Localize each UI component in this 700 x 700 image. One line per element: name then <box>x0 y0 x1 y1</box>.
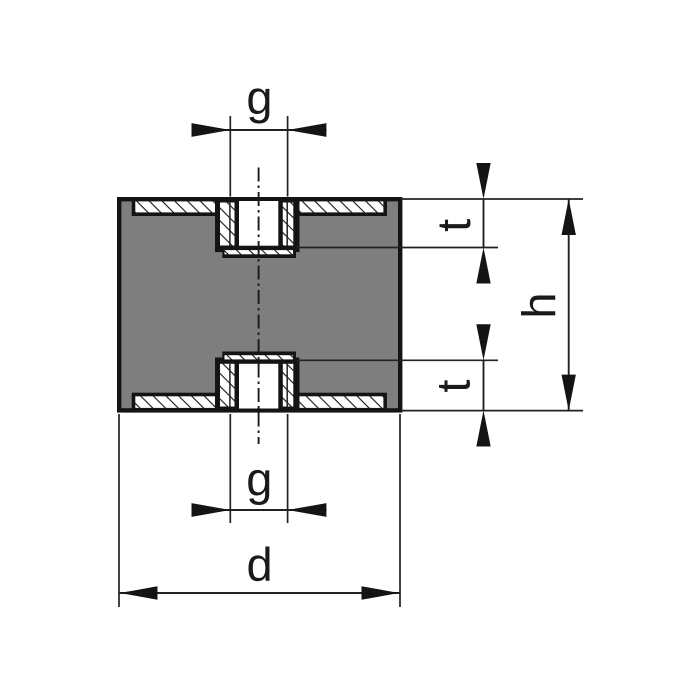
svg-text:g: g <box>246 452 272 505</box>
svg-text:h: h <box>513 292 566 318</box>
svg-text:d: d <box>247 538 273 591</box>
svg-text:g: g <box>246 71 272 124</box>
svg-text:t: t <box>427 380 480 393</box>
svg-text:t: t <box>427 219 480 232</box>
